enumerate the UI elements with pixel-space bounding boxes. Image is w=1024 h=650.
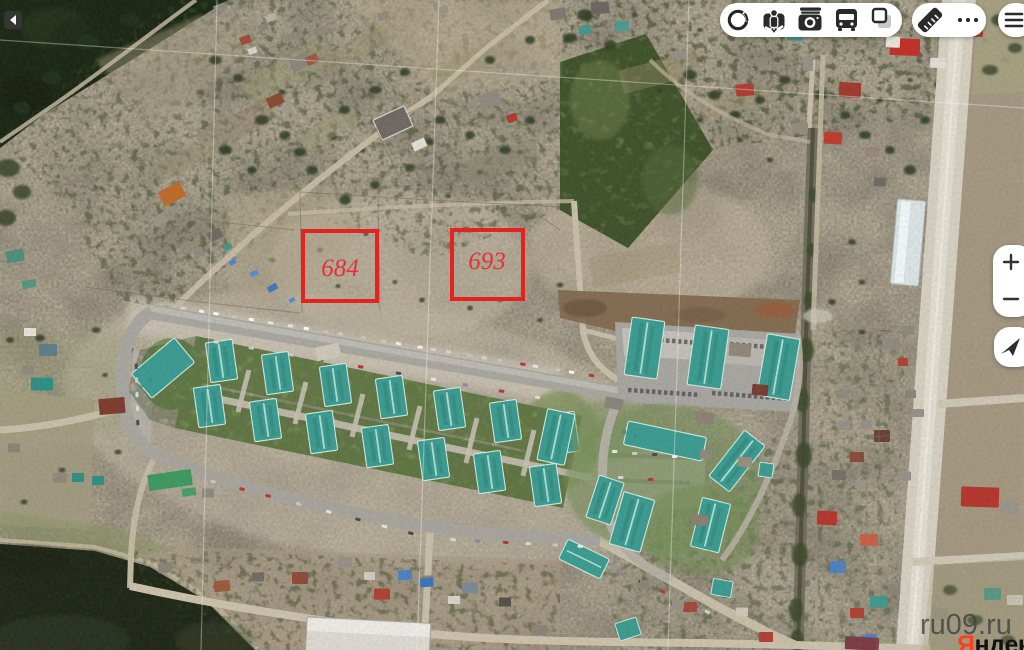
svg-text:693: 693 [468,248,506,275]
svg-text:Яндекс: Яндекс [957,631,1024,650]
svg-text:684: 684 [321,255,359,282]
